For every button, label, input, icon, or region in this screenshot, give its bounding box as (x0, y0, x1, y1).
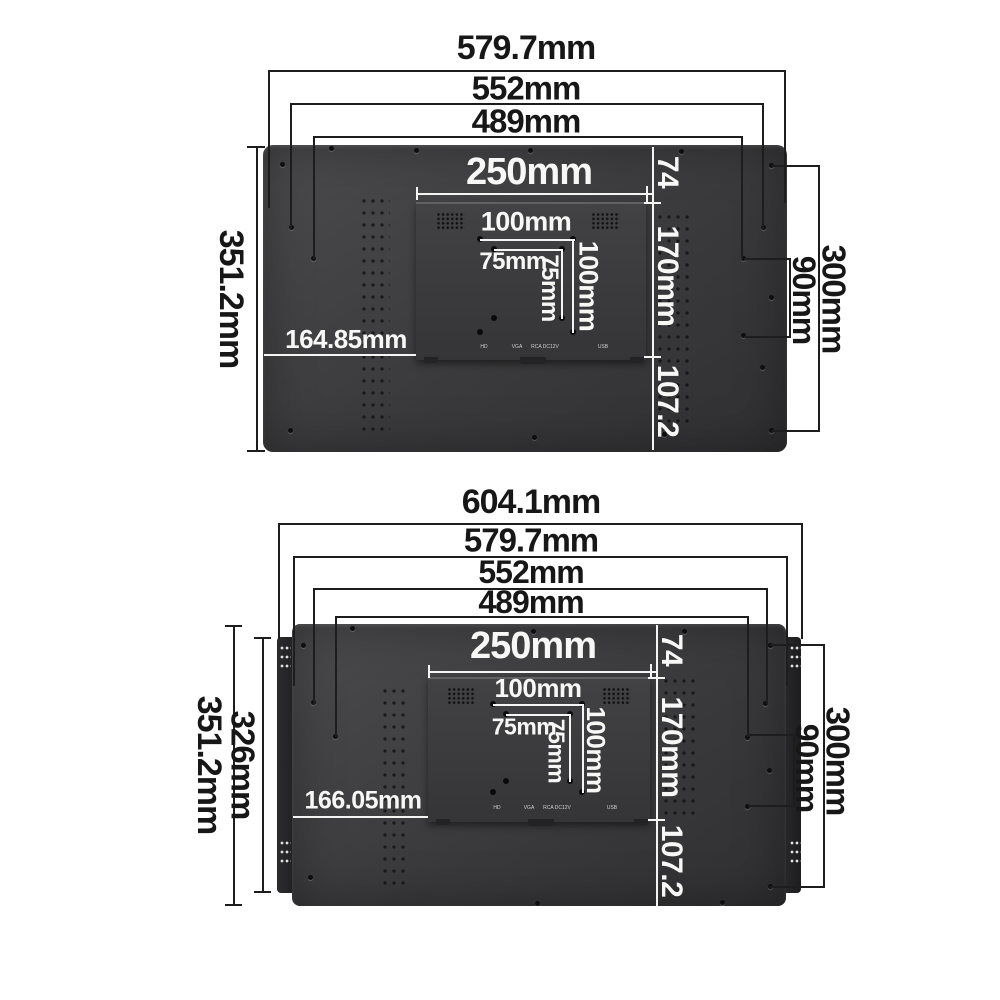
dim-vesa100-width: 100mm (481, 209, 572, 236)
screw-hole (535, 901, 540, 906)
dim-width-outer: 579.7mm (457, 31, 596, 65)
dim-right-span: 300mm (818, 245, 851, 354)
dim-tick (225, 904, 242, 906)
dim-extension (290, 103, 292, 229)
speaker-grille-left (448, 688, 476, 705)
port-label-vga: VGA (524, 805, 535, 811)
dim-tick (247, 450, 265, 452)
dim-extension (313, 588, 315, 704)
dim-line (256, 146, 258, 452)
dim-plate-width: 250mm (466, 153, 592, 191)
dim-extension (766, 588, 768, 704)
vesa100-width-line (493, 704, 583, 706)
screw-hole (532, 435, 537, 440)
dim-height: 351.2mm (214, 230, 248, 369)
dim-width-bracket: 604.1mm (462, 485, 601, 519)
dim-tick (254, 637, 271, 639)
screw-hole (308, 875, 313, 880)
dim-plate-segment: 170mm (656, 697, 686, 798)
plate-foot-left (424, 357, 438, 363)
connector (520, 357, 546, 364)
dim-line-white (416, 193, 652, 195)
dim-tick (247, 146, 265, 148)
plate-foot-right (634, 819, 648, 825)
screw-hole (329, 146, 334, 151)
dim-line-white (264, 354, 416, 356)
dim-tick-white (648, 819, 665, 821)
dim-bottom-segment: 107.2 (656, 825, 686, 898)
screw-hole (288, 428, 293, 433)
plate-foot-right (630, 357, 644, 363)
vesa-hole (503, 778, 509, 784)
dim-height: 351.2mm (192, 696, 226, 835)
dim-top-segment: 74 (656, 634, 686, 666)
dim-tick-white (644, 356, 661, 358)
dim-extension (268, 70, 270, 208)
dim-extension (786, 556, 788, 686)
bracket-holes (280, 841, 291, 868)
port-label-vga: VGA (512, 344, 523, 350)
dim-vesa75-height: 75mm (537, 254, 561, 321)
dim-extension (335, 616, 337, 737)
dim-line (770, 886, 825, 888)
dim-line (744, 258, 791, 260)
dim-right-gap: 90mm (791, 724, 823, 813)
dim-vesa100-width: 100mm (494, 675, 581, 701)
screw-hole (414, 148, 419, 153)
dim-extension (762, 103, 764, 229)
vesa100-width-line (480, 239, 575, 241)
dim-width-holes-outer: 552mm (472, 72, 581, 105)
vesa-hole (491, 315, 497, 321)
dim-extension (293, 556, 295, 686)
dim-vesa100-height: 100mm (583, 706, 609, 793)
port-label-usb: USB (598, 344, 608, 350)
dim-extension (313, 136, 315, 259)
dim-line-white (293, 816, 428, 818)
bracket-holes (280, 646, 291, 673)
screw-hole (301, 643, 306, 648)
connector (528, 819, 554, 826)
dim-extension (784, 70, 786, 203)
dim-extension (747, 616, 749, 737)
screw-hole (350, 626, 355, 631)
dim-bottom-offset: 164.85mm (285, 326, 407, 352)
port-label-hd: HD (493, 805, 500, 811)
port-label-hd: HD (480, 344, 487, 350)
plate-foot-left (436, 819, 450, 825)
port-label-rca-dc: RCA DC12V (543, 805, 571, 811)
port-label-usb: USB (607, 805, 617, 811)
dim-bracket-height: 326mm (227, 711, 260, 820)
dim-line (313, 136, 743, 138)
bracket-holes (790, 841, 801, 868)
dim-tick-white (428, 665, 430, 678)
dim-vesa100-height: 100mm (575, 241, 602, 332)
dim-plate-width: 250mm (470, 627, 596, 665)
speaker-grille-right (603, 688, 631, 705)
dim-extension (801, 523, 803, 639)
dim-width-holes-inner: 489mm (478, 586, 583, 618)
dim-line (335, 616, 749, 618)
dim-bottom-segment: 107.2 (652, 365, 682, 438)
dim-tick (225, 625, 242, 627)
dim-vesa75-height: 75mm (545, 719, 568, 783)
dim-line (262, 637, 264, 893)
dim-plate-segment: 170mm (652, 226, 682, 327)
bracket-holes (790, 646, 801, 673)
dim-bottom-offset: 166.05mm (305, 789, 422, 814)
speaker-grille-right (592, 213, 620, 230)
vent-holes-left (362, 198, 390, 436)
dim-extension (741, 136, 743, 259)
speaker-grille-left (437, 213, 465, 230)
port-label-rca-dc: RCA DC12V (531, 344, 559, 350)
dim-tick-white (646, 186, 648, 202)
screw-hole (280, 162, 285, 167)
monitor-dimension-diagram: 579.7mm 552mm 489mm 351.2mm 74 170mm 107… (0, 0, 1000, 1000)
screw-hole (767, 768, 772, 773)
dim-line (772, 165, 820, 167)
dim-line (772, 430, 820, 432)
screw-hole (720, 900, 725, 905)
dim-line (748, 805, 795, 807)
dim-width-holes-inner: 489mm (472, 105, 581, 138)
screw-hole (769, 295, 774, 300)
dim-extension (278, 523, 280, 639)
dim-line (770, 644, 825, 646)
vesa-hole (477, 329, 483, 335)
dim-tick (254, 891, 271, 893)
dim-width-outer: 579.7mm (464, 524, 598, 557)
dim-tick-white (650, 664, 652, 679)
screw-hole (679, 149, 684, 154)
dim-line (748, 734, 795, 736)
dim-tick-white (644, 202, 661, 204)
dim-line (744, 336, 791, 338)
dim-tick-white (416, 187, 418, 200)
screw-hole (760, 365, 765, 370)
vesa-hole (490, 789, 496, 795)
dim-top-segment: 74 (652, 156, 682, 188)
dim-right-span: 300mm (822, 707, 855, 816)
